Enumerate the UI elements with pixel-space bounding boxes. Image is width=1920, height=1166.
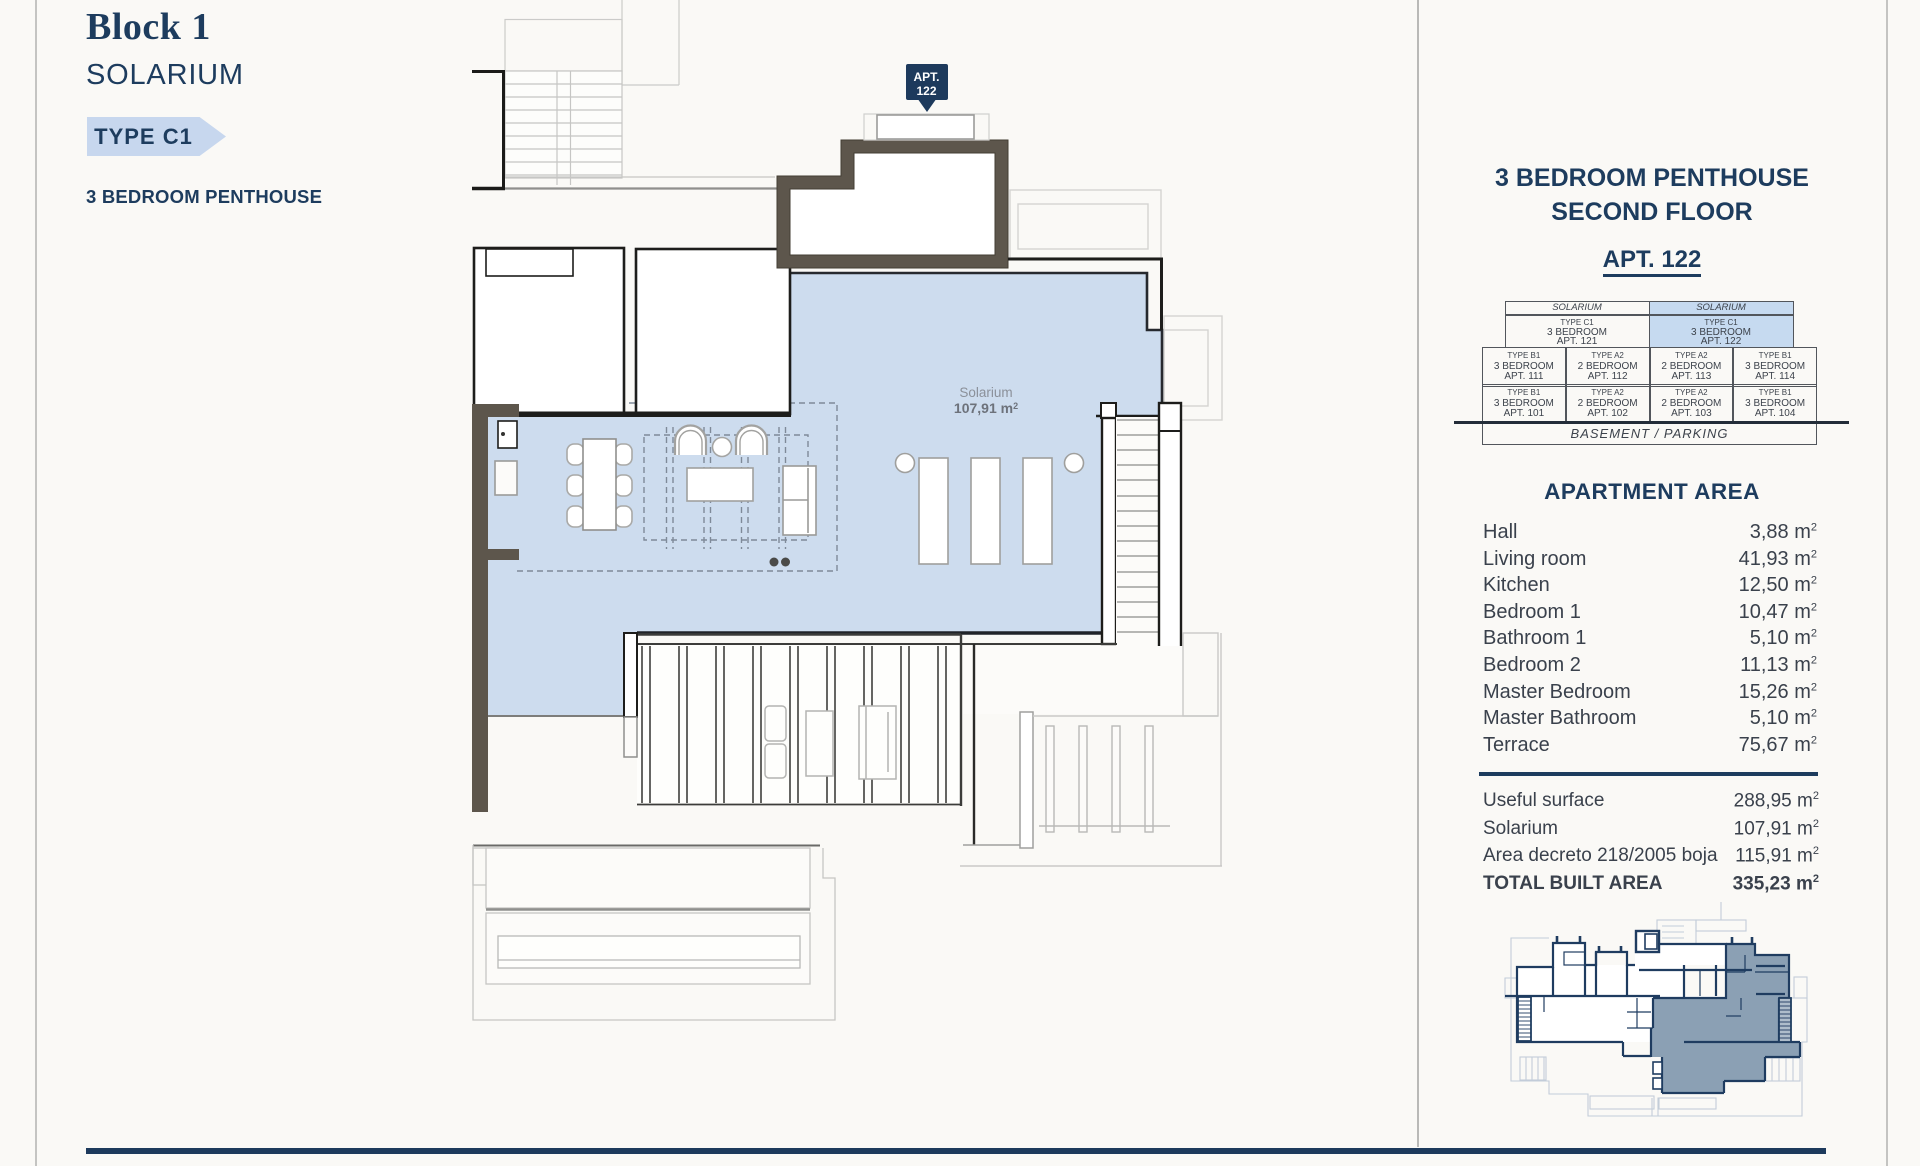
svg-text:107,91 m2: 107,91 m2 <box>954 400 1018 416</box>
svg-text:APT.: APT. <box>913 70 939 84</box>
svg-text:Solarium: Solarium <box>959 385 1012 400</box>
svg-text:122: 122 <box>916 84 936 98</box>
